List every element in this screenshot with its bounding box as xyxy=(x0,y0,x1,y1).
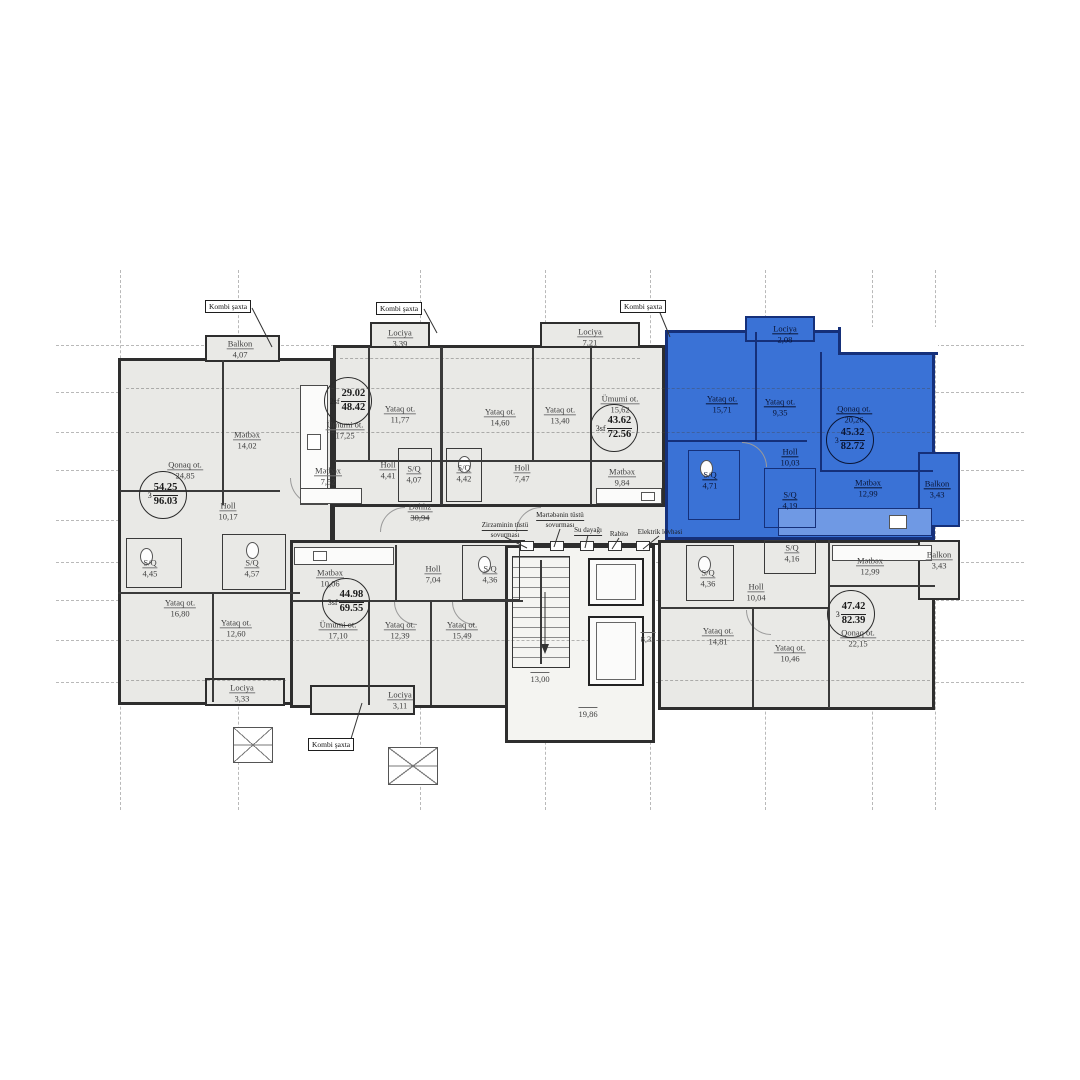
room-label: Lociya3,11 xyxy=(387,689,413,710)
wall xyxy=(660,607,828,609)
elevator-car xyxy=(596,564,636,600)
duct-shaft xyxy=(636,541,650,551)
room-label: Lociya2,08 xyxy=(772,323,798,344)
wall xyxy=(755,332,757,440)
room-label: S/Q4,71 xyxy=(702,469,717,490)
kombi-shaft-label: Kombi şaxta xyxy=(308,738,354,751)
room-label: Balkon3,43 xyxy=(926,549,953,570)
kombi-shaft-label: Kombi şaxta xyxy=(620,300,666,313)
beam-line xyxy=(660,680,930,681)
elevator-2 xyxy=(588,616,644,686)
room-label: Holl4,41 xyxy=(379,459,396,480)
kitchen-counter xyxy=(300,488,362,504)
room-label: Yataq ot.14,81 xyxy=(702,625,734,646)
room-label: Mətbəx12,99 xyxy=(856,555,884,576)
apartment-badge: 2sf29.0248.42 xyxy=(324,377,372,425)
room-label: S/Q4,16 xyxy=(784,542,799,563)
room-label: Holl7,47 xyxy=(513,462,530,483)
wall xyxy=(752,607,754,707)
apartment-badge: 354.2596.03 xyxy=(139,471,187,519)
wall xyxy=(667,440,807,442)
elevator-car xyxy=(596,622,636,680)
dimension-label: 8,32 xyxy=(641,632,656,644)
room-label: Lociya3,39 xyxy=(387,327,413,348)
apartment-badge: 3sf43.6272.56 xyxy=(590,404,638,452)
room-label: Mətbəx14,02 xyxy=(233,429,261,450)
duct-shaft xyxy=(608,541,622,551)
wall xyxy=(222,360,224,505)
room-label: S/Q4,36 xyxy=(700,567,715,588)
room-label: Yataq ot.12,60 xyxy=(220,617,252,638)
floor-plan-canvas: Balkon4,07 Qonaq ot.24,85 Mətbəx14,02 35… xyxy=(0,0,1080,1080)
beam-line xyxy=(126,388,930,389)
stove xyxy=(889,515,907,529)
elevator-1 xyxy=(588,558,644,606)
wall xyxy=(820,470,933,472)
room-label: Holl7,04 xyxy=(424,563,441,584)
dimension-label: 19,86 xyxy=(578,707,597,719)
wall xyxy=(820,352,822,470)
sink xyxy=(313,551,327,561)
kombi-shaft-label: Kombi şaxta xyxy=(205,300,251,313)
wall xyxy=(368,600,370,705)
room-label: Lociya3,33 xyxy=(229,682,255,703)
room-label: Mətbəx7,52 xyxy=(314,465,342,486)
sink xyxy=(307,434,321,450)
duct-shaft xyxy=(550,541,564,551)
wall xyxy=(430,600,432,705)
wall xyxy=(212,592,214,702)
room-label: S/Q4,57 xyxy=(244,557,259,578)
utility-label-basement-vent: Zirzəminin tüstüsovurması xyxy=(482,521,528,540)
wall xyxy=(118,592,300,594)
room-label: Balkon3,43 xyxy=(924,478,951,499)
room-label: Balkon4,07 xyxy=(227,338,254,359)
stair-rail xyxy=(540,560,542,664)
room-label: Holl10,03 xyxy=(780,446,799,467)
room-label: Yataq ot.13,40 xyxy=(544,404,576,425)
kombi-shaft-label: Kombi şaxta xyxy=(376,302,422,315)
utility-label-comms: Rabitə xyxy=(610,530,628,539)
room-label: Yataq ot.12,39 xyxy=(384,619,416,640)
apartment-badge: 347.4282.39 xyxy=(827,590,875,638)
wall xyxy=(395,545,397,600)
utility-label-electric: Elektrik lövhəsi xyxy=(638,528,683,537)
room-label: Mətbəx12,99 xyxy=(854,477,882,498)
apartment-badge: 3sf44.9869.55 xyxy=(322,578,370,626)
vent-symbol xyxy=(233,727,273,763)
kitchen-counter xyxy=(596,488,662,504)
room-label: Yataq ot.9,35 xyxy=(764,396,796,417)
wall xyxy=(440,347,443,505)
room-label: Mətbəx9,84 xyxy=(608,466,636,487)
duct-shaft xyxy=(580,541,594,551)
duct-shaft xyxy=(520,541,534,551)
room-label: Yataq ot.14,60 xyxy=(484,406,516,427)
utility-label-water-riser: Su dayağı xyxy=(574,526,602,536)
stove xyxy=(641,492,655,501)
room-label: Holl10,17 xyxy=(218,500,237,521)
room-label: S/Q4,45 xyxy=(142,557,157,578)
apartment-badge-selected: 345.3282.72 xyxy=(826,416,874,464)
facade-step xyxy=(838,327,938,355)
room-label: Yataq ot.16,80 xyxy=(164,597,196,618)
room-label: Holl10,04 xyxy=(746,581,765,602)
beam-line xyxy=(126,680,286,681)
room-label: S/Q4,19 xyxy=(782,489,797,510)
kitchen-counter xyxy=(294,547,394,565)
room-label: S/Q4,42 xyxy=(456,462,471,483)
wall xyxy=(532,347,534,462)
room-label: Yataq ot.15,71 xyxy=(706,393,738,414)
vent-symbol xyxy=(388,747,438,785)
corridor-label: Dəhliz30,94 xyxy=(408,501,433,522)
room-label: Yataq ot.11,77 xyxy=(384,403,416,424)
room-label: Yataq ot.15,49 xyxy=(446,619,478,640)
room-label: Yataq ot.10,46 xyxy=(774,642,806,663)
dimension-label: 13,00 xyxy=(530,672,549,684)
room-label: S/Q4,07 xyxy=(406,463,421,484)
room-label: S/Q4,36 xyxy=(482,563,497,584)
beam-line xyxy=(340,358,640,359)
wall xyxy=(828,585,935,587)
room-label: Lociya7,21 xyxy=(577,326,603,347)
